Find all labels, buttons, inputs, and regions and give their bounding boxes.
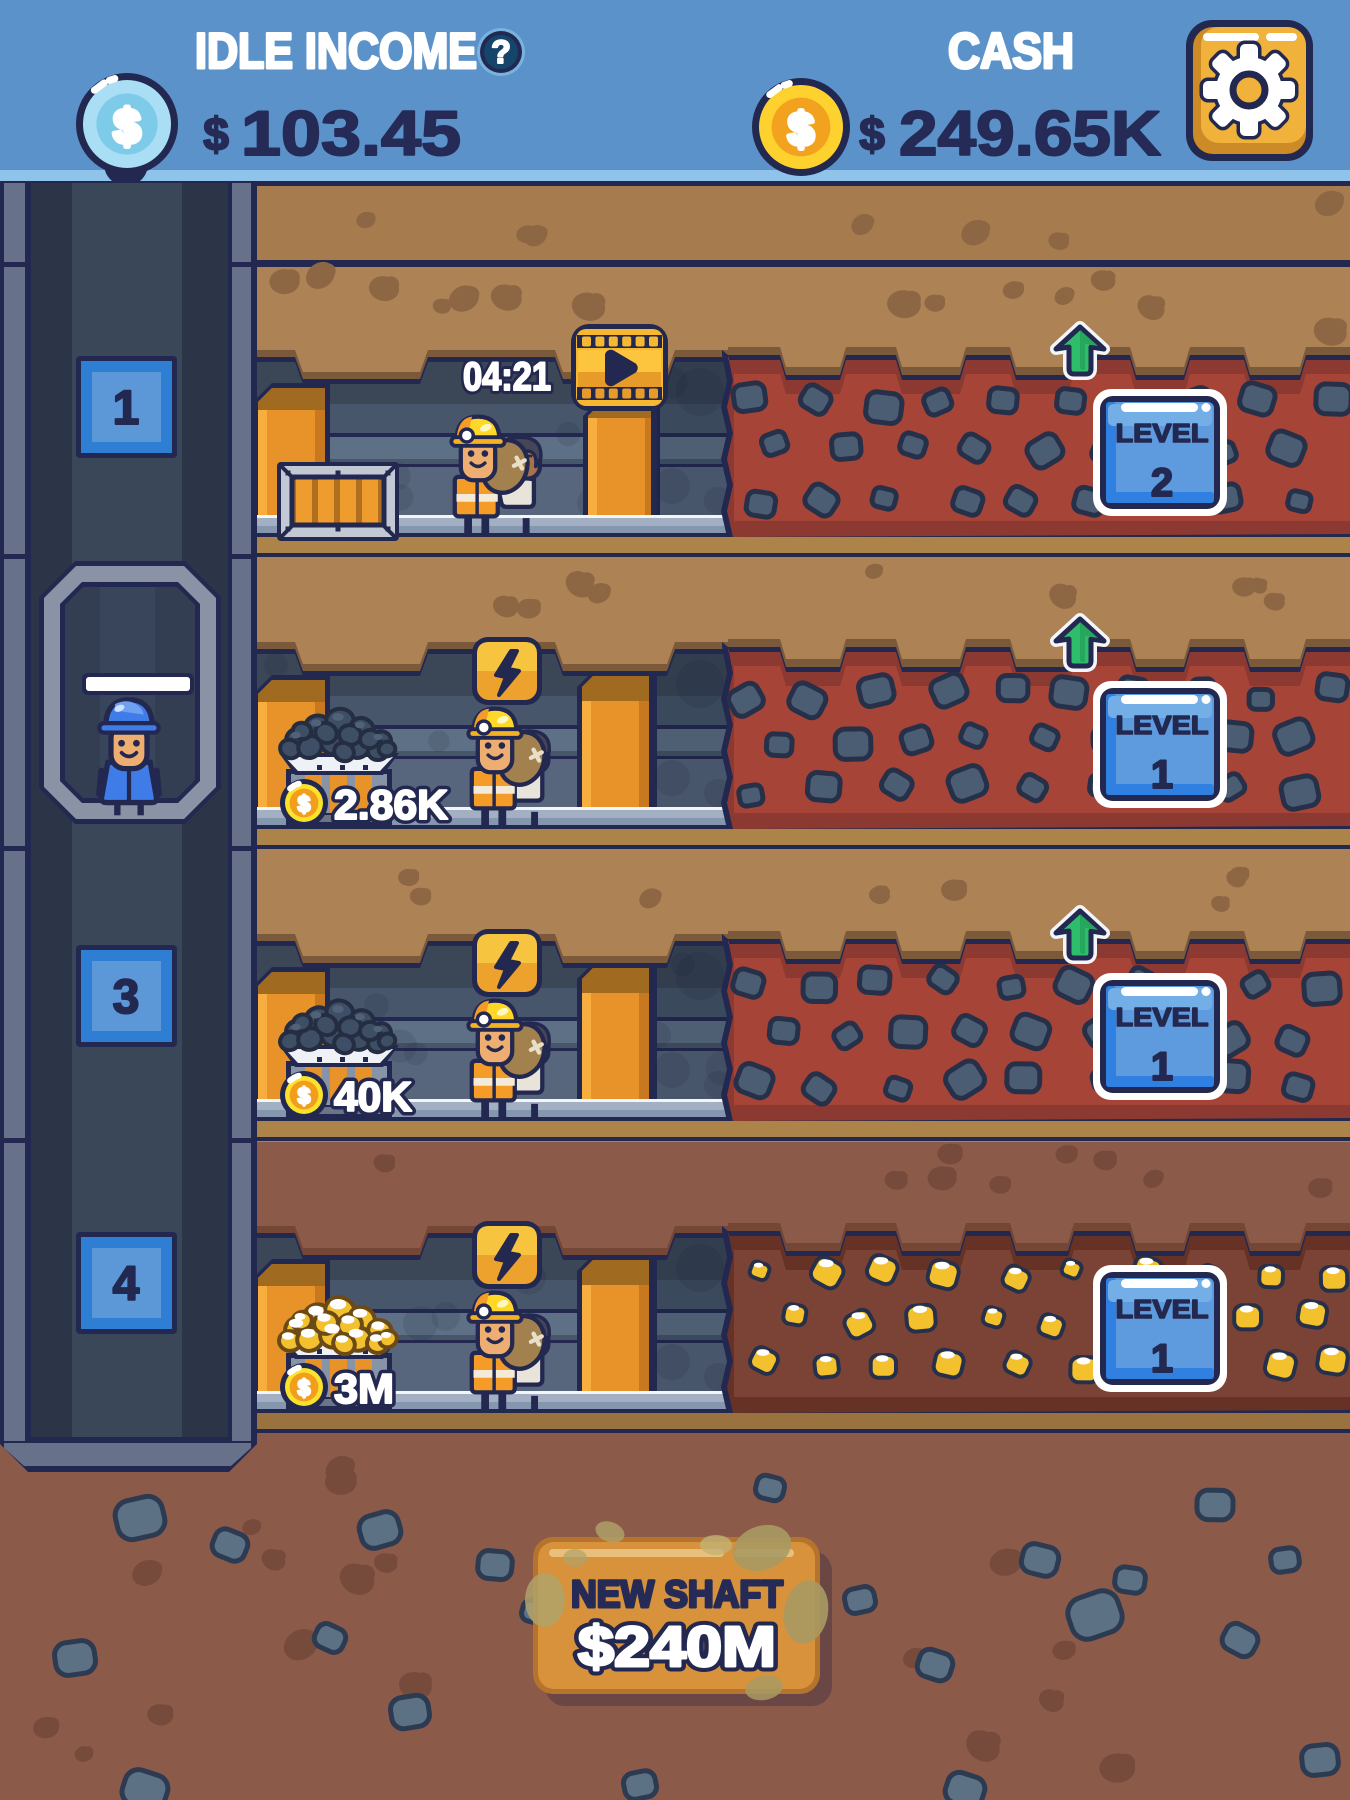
svg-text:3M: 3M xyxy=(334,1365,394,1412)
svg-text:1: 1 xyxy=(1151,1045,1173,1089)
svg-text:2: 2 xyxy=(1151,461,1173,505)
svg-text:04:21: 04:21 xyxy=(463,355,551,399)
svg-text:1: 1 xyxy=(1151,1337,1173,1381)
svg-text:$: $ xyxy=(203,108,229,160)
svg-text:2.86K: 2.86K xyxy=(334,781,448,828)
svg-text:LEVEL: LEVEL xyxy=(1116,1002,1209,1032)
svg-text:?: ? xyxy=(491,34,511,70)
svg-text:1: 1 xyxy=(113,382,140,435)
svg-text:NEW SHAFT: NEW SHAFT xyxy=(571,1574,783,1616)
svg-text:$: $ xyxy=(114,100,141,154)
svg-text:$: $ xyxy=(298,1083,311,1109)
svg-text:40K: 40K xyxy=(334,1073,412,1120)
svg-text:$: $ xyxy=(788,103,814,155)
svg-text:LEVEL: LEVEL xyxy=(1116,1294,1209,1324)
svg-text:$: $ xyxy=(298,791,311,817)
svg-text:249.65K: 249.65K xyxy=(899,99,1161,169)
svg-text:3: 3 xyxy=(113,971,140,1024)
svg-text:LEVEL: LEVEL xyxy=(1116,418,1209,448)
svg-text:LEVEL: LEVEL xyxy=(1116,710,1209,740)
svg-text:103.45: 103.45 xyxy=(241,99,461,169)
svg-text:4: 4 xyxy=(113,1258,140,1311)
svg-text:1: 1 xyxy=(1151,753,1173,797)
svg-text:$: $ xyxy=(859,108,885,160)
svg-text:$: $ xyxy=(298,1375,311,1401)
svg-text:$240M: $240M xyxy=(578,1615,776,1679)
svg-text:IDLE INCOME: IDLE INCOME xyxy=(195,23,477,79)
svg-text:CASH: CASH xyxy=(948,23,1074,79)
